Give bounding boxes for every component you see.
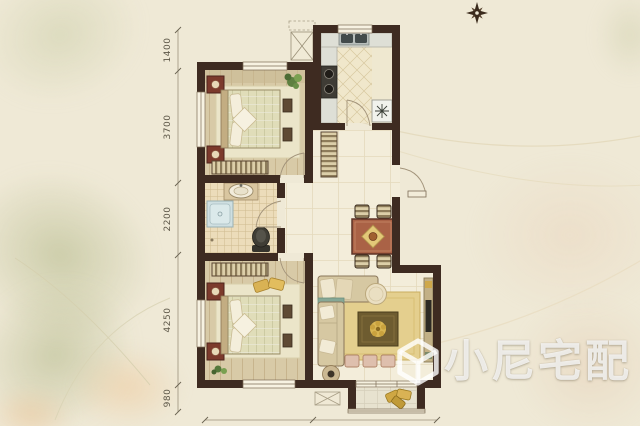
lamp-side-table-icon [323, 366, 340, 383]
dimension-label: 980 [162, 380, 174, 416]
wardrobe-icon [212, 161, 268, 174]
compass-rose-icon [466, 2, 489, 25]
dimension-label: 2200 [162, 201, 174, 237]
dining-chair-icon [355, 255, 369, 268]
pillow [320, 278, 337, 299]
dining-chair-icon [377, 205, 391, 218]
ac-platform-icon [315, 392, 340, 405]
dimension-label: 1400 [162, 32, 174, 68]
watermark: 小尼宅配 [392, 332, 632, 392]
window [243, 380, 295, 388]
toilet-icon [252, 227, 270, 252]
bed-headboard [221, 296, 228, 354]
watermark-text: 小尼宅配 [444, 340, 632, 384]
window [338, 25, 372, 33]
round-pouf-icon [366, 284, 387, 305]
window [197, 92, 205, 147]
dimension-label: 4250 [162, 302, 174, 338]
bedside-bench [283, 128, 292, 141]
stove-icon [321, 66, 337, 98]
kitchen-sink-icon [339, 32, 369, 45]
pillow [319, 339, 336, 355]
wardrobe-icon [212, 263, 268, 276]
balcony-railing [348, 409, 425, 413]
floor-plan-image: 1400 3700 2200 4250 980 小尼宅配 [0, 0, 640, 426]
flue-shaft-icon [289, 21, 315, 60]
entry-door-arc [400, 168, 426, 197]
dining-chair-icon [377, 255, 391, 268]
fridge-icon [372, 100, 392, 122]
bedside-bench [283, 334, 292, 347]
window [197, 300, 205, 347]
pillow [335, 278, 353, 300]
dimension-label: 3700 [162, 109, 174, 145]
ottoman-icon [363, 355, 377, 367]
cube-logo-icon [392, 334, 444, 390]
bed-headboard [221, 90, 228, 148]
shoe-cabinet-icon [321, 132, 337, 177]
window [243, 62, 287, 70]
bedside-bench [283, 99, 292, 112]
floor-drain [211, 239, 214, 242]
bedside-bench [283, 305, 292, 318]
dining-chair-icon [355, 205, 369, 218]
pillow [319, 305, 335, 320]
ottoman-icon [345, 355, 359, 367]
